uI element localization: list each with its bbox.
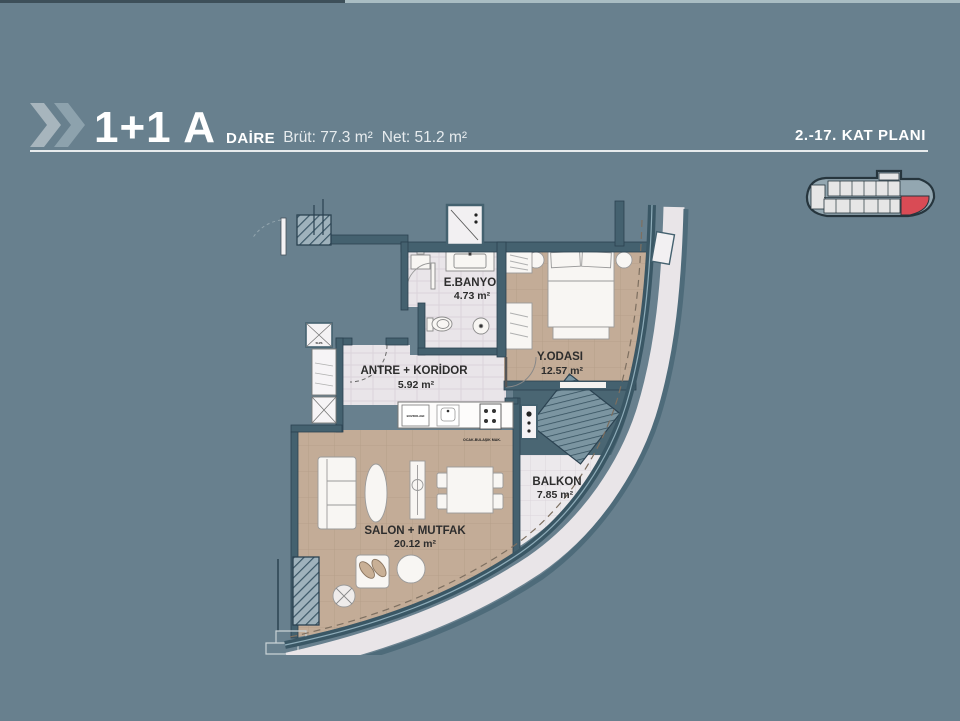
stove (480, 404, 501, 429)
page-title: 1+1 A (94, 108, 216, 148)
plan-range-label: 2.-17. KAT PLANI (795, 127, 926, 144)
header: 1+1 A DAİRE Brüt: 77.3 m² Net: 51.2 m² 2… (30, 98, 930, 148)
common-door-leaf (281, 218, 286, 255)
dining-table (447, 467, 493, 513)
room-label-balcony: BALKON (532, 476, 581, 488)
dining-chair (492, 473, 503, 488)
wardrobe (506, 303, 532, 349)
net-area: Net: 51.2 m² (382, 129, 467, 147)
room-label-entry: ANTRE + KORİDOR (360, 364, 468, 377)
stove-dishwasher-label: OCAK-BULAŞIK MAK. (463, 438, 501, 442)
sofa (318, 457, 356, 529)
svg-text:20.12 m²: 20.12 m² (394, 538, 437, 550)
bed-bench (553, 327, 609, 339)
washing-machine (411, 255, 430, 269)
pillow (551, 251, 581, 267)
floor-plan-page: 1+1 A DAİRE Brüt: 77.3 m² Net: 51.2 m² 2… (0, 0, 960, 721)
svg-text:5.92 m²: 5.92 m² (398, 379, 435, 391)
dining-chair (437, 473, 448, 488)
wardrobe (506, 249, 532, 273)
room-label-bedroom: Y.ODASI (537, 351, 583, 363)
structural-column (293, 557, 319, 625)
closet (312, 349, 336, 395)
bathroom-door-leaf (431, 263, 435, 289)
svg-text:12.57 m²: 12.57 m² (541, 365, 584, 377)
nightstand (616, 252, 632, 268)
svg-text:7.85 m²: 7.85 m² (537, 489, 574, 501)
round-table (397, 555, 425, 583)
double-chevron-icon (30, 103, 86, 147)
shaft-label: SU/S (315, 341, 322, 345)
window-sill (560, 382, 606, 388)
header-divider (30, 150, 928, 152)
gross-area: Brüt: 77.3 m² (283, 129, 373, 147)
top-edge-decoration (0, 0, 960, 3)
room-label-living: SALON + MUTFAK (364, 525, 466, 537)
building-key-plan (798, 166, 950, 224)
room-label-bathroom: E.BANYO (444, 277, 496, 289)
refrigerator-label: BUZDOLABI (407, 414, 425, 418)
common-door-arc (252, 220, 281, 239)
pillow (582, 251, 612, 267)
dining-chair (437, 494, 448, 509)
apartment-floor-plan: SU/S BUZDOLABI OCAK-BULAŞIK MAK. (230, 185, 720, 655)
oval-rug (365, 464, 387, 522)
unit-type-label: DAİRE (226, 130, 275, 147)
svg-text:4.73 m²: 4.73 m² (454, 290, 491, 302)
dining-chair (492, 494, 503, 509)
